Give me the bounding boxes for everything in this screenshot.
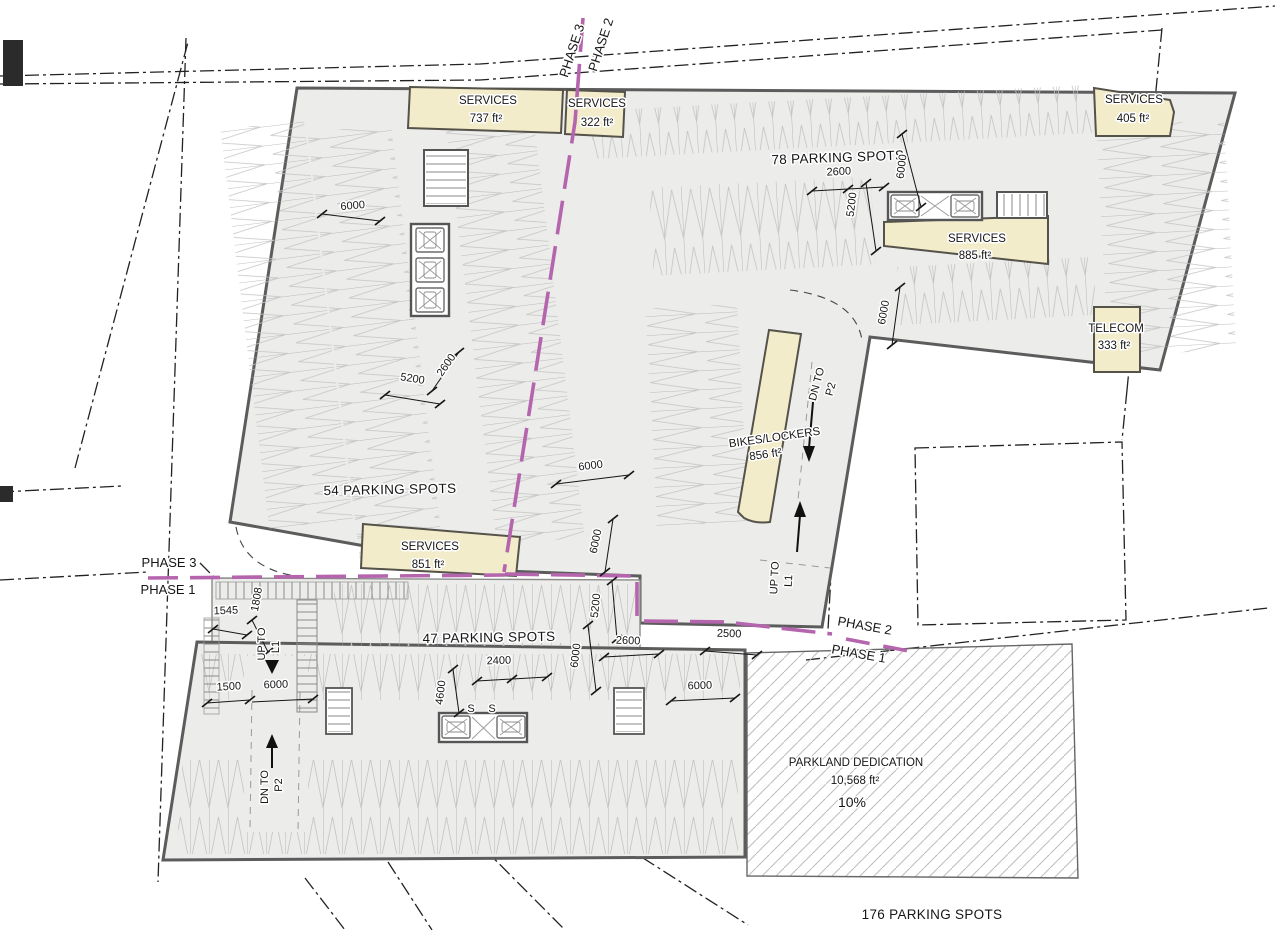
dim-aisle-sw: 6000: [263, 679, 288, 692]
stair-northwest: [424, 150, 468, 206]
floor-plan-page: PHASE 3 PHASE 2 PHASE 3 PHASE 1 PHASE 2 …: [0, 0, 1280, 930]
room-area-telecom: 333 ft²: [1098, 340, 1131, 352]
room-area-services-405: 405 ft²: [1117, 113, 1150, 125]
phase-label-top-right: PHASE 2: [585, 16, 616, 73]
survey-edge-marker: [0, 486, 13, 502]
elevator-core-south: [439, 713, 527, 742]
ramp-label-dn-p2-south-1: DN TO: [259, 770, 271, 804]
dim-stall-width-s: 2400: [486, 655, 511, 668]
dim-stall-width-n: 2600: [826, 165, 851, 178]
dim-1500: 1500: [216, 680, 241, 693]
parkland-title: PARKLAND DEDICATION: [789, 757, 923, 769]
dim-aisle-nw: 6000: [340, 199, 365, 213]
room-label-services-405: SERVICES: [1105, 94, 1163, 106]
stair-northeast: [997, 192, 1047, 218]
phase-label-top-left: PHASE 3: [556, 22, 587, 79]
dim-gap-e: 2500: [717, 628, 742, 641]
room-area-services-885: 885 ft²: [959, 250, 992, 262]
room-services-737: [408, 87, 563, 133]
floor-plan-drawing: PHASE 3 PHASE 2 PHASE 3 PHASE 1 PHASE 2 …: [0, 0, 1280, 930]
parkland-percent: 10%: [838, 794, 866, 810]
room-label-services-851: SERVICES: [401, 541, 459, 553]
room-label-services-885: SERVICES: [948, 233, 1006, 245]
ramp-label-up-l1-east-2: L1: [783, 574, 796, 587]
dim-aisle-se: 6000: [687, 680, 712, 693]
parkland-area: 10,568 ft²: [831, 775, 880, 787]
dim-stall-depth-c: 5200: [589, 593, 603, 619]
phase-label-east-upper: PHASE 2: [836, 613, 893, 637]
elevator-core-northwest: [411, 224, 449, 316]
dim-stall-width-c: 2600: [616, 635, 641, 648]
ramp-label-up-l1-east-1: UP TO: [768, 561, 782, 595]
small-stall-s2: S: [488, 703, 495, 715]
dim-1545: 1545: [213, 605, 238, 618]
ramp-label-dn-p2-south-2: P2: [273, 778, 285, 791]
count-central-parking: 47 PARKING SPOTS: [422, 629, 555, 646]
ramp-label-up-l1-west-1: UP TO: [256, 627, 268, 660]
room-area-services-851: 851 ft²: [412, 559, 445, 571]
room-label-telecom: TELECOM: [1088, 323, 1144, 335]
room-area-services-322: 322 ft²: [581, 117, 614, 129]
room-area-services-737: 737 ft²: [470, 113, 503, 125]
room-label-services-737: SERVICES: [459, 95, 517, 107]
phase-label-west-upper: PHASE 3: [142, 555, 197, 570]
survey-monument-marker: [3, 40, 23, 86]
stair-southwest: [326, 688, 352, 734]
stair-south-east: [614, 688, 644, 734]
count-total-parking: 176 PARKING SPOTS: [862, 907, 1003, 922]
room-label-services-322: SERVICES: [568, 98, 626, 110]
ramp-label-up-l1-west-2: L1: [270, 641, 282, 653]
count-west-parking: 54 PARKING SPOTS: [323, 481, 456, 498]
small-stall-s1: S: [467, 703, 474, 715]
elevator-core-northeast: [888, 192, 982, 220]
phase-label-west-lower: PHASE 1: [141, 582, 196, 597]
